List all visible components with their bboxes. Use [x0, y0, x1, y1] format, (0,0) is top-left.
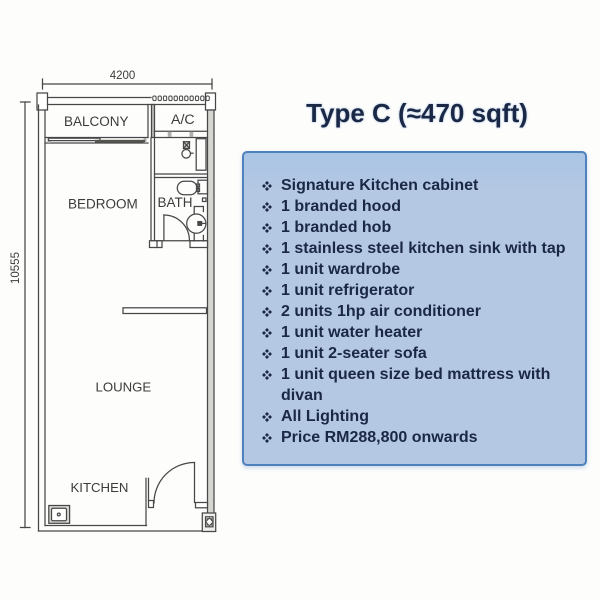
svg-text:BATH: BATH	[158, 195, 193, 210]
svg-text:4200: 4200	[110, 70, 136, 82]
svg-text:LOUNGE: LOUNGE	[96, 380, 152, 395]
svg-text:10555: 10555	[10, 252, 22, 284]
svg-text:BALCONY: BALCONY	[64, 114, 129, 129]
svg-text:KITCHEN: KITCHEN	[71, 480, 129, 495]
svg-text:A/C: A/C	[171, 112, 195, 128]
svg-text:BEDROOM: BEDROOM	[68, 196, 138, 211]
